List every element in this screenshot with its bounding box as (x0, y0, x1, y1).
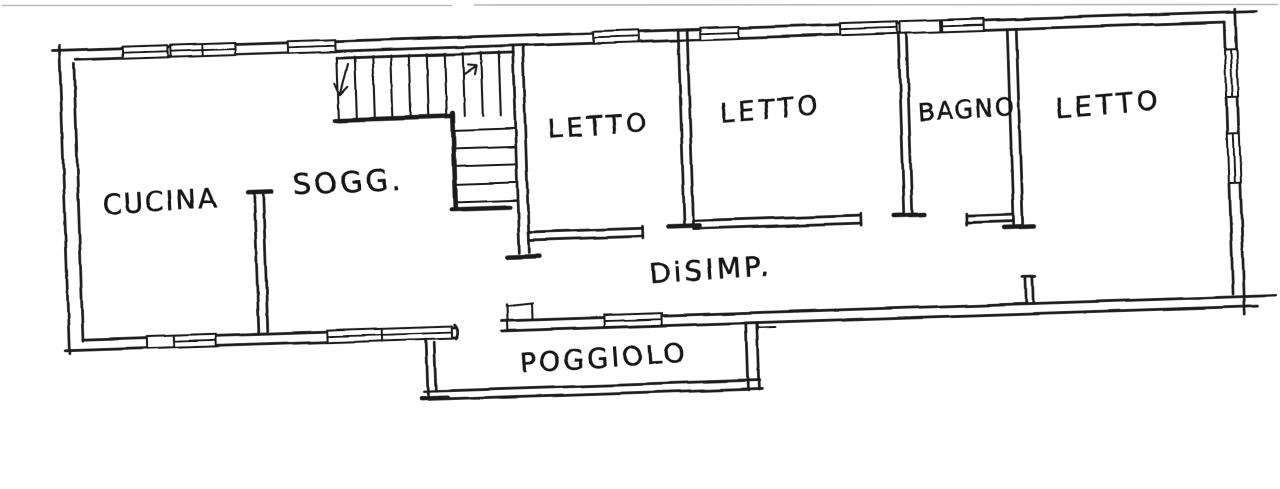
wall-bagno-letto3-foot (1004, 226, 1034, 227)
room-label-poggiolo: POGGIOLO (519, 337, 689, 379)
window (900, 20, 940, 33)
room-label-soggiorno: SOGG. (292, 162, 404, 202)
wall-bagno-letto3 (1007, 29, 1022, 224)
wall-letto2-bagno-foot (894, 215, 924, 216)
stairs-treads-down-run (453, 128, 517, 202)
floor-plan-drawing: CUCINA SOGG. LETTO LETTO BAGNO LETTO DiS… (0, 0, 1280, 489)
balcony-wall-left (426, 339, 436, 396)
wall-bagno-south-stub (966, 212, 1013, 225)
wall-letto3-door-jamb (1022, 275, 1036, 303)
balcony-wall-stub (757, 327, 775, 328)
stairs-down-run-cap (452, 208, 510, 210)
wall-top-inner (76, 22, 1224, 60)
wall-cucina-sogg (254, 194, 268, 334)
balcony-corner-foot (421, 398, 447, 399)
stairs-left-rail-down-run (453, 113, 456, 209)
wall-letto1-south (529, 226, 643, 242)
room-label-letto-3: LETTO (1055, 85, 1163, 125)
door-jamb-marks (506, 303, 534, 331)
room-label-bagno: BAGNO (917, 92, 1017, 127)
room-label-letto-2: LETTO (718, 91, 823, 130)
wall-sogg-letto1-foot (507, 256, 539, 257)
room-label-disimpegno: DiSIMP. (648, 249, 772, 290)
window (147, 335, 174, 348)
wall-letto2-south (693, 213, 861, 231)
wall-letto1-letto2 (678, 30, 693, 223)
outer-walls (52, 6, 1275, 354)
wall-left-inner (74, 64, 83, 341)
floor-plan-page: CUCINA SOGG. LETTO LETTO BAGNO LETTO DiS… (0, 0, 1280, 489)
room-label-cucina: CUCINA (102, 183, 220, 221)
scan-artifact-line (2, 5, 1278, 6)
wall-sogg-letto1 (513, 45, 530, 252)
stairs-treads-upper-run (337, 52, 501, 120)
wall-letto2-bagno (898, 33, 912, 213)
wall-letto1-letto2-foot (669, 225, 700, 226)
wall-cucina-sogg-cap (248, 192, 271, 193)
room-label-letto-1: LETTO (547, 108, 651, 145)
stairs-direction-arrow-head (463, 65, 476, 74)
balcony-wall-bottom (424, 380, 762, 400)
wall-left-outer (59, 45, 69, 353)
stairs-top-rail (337, 52, 513, 58)
